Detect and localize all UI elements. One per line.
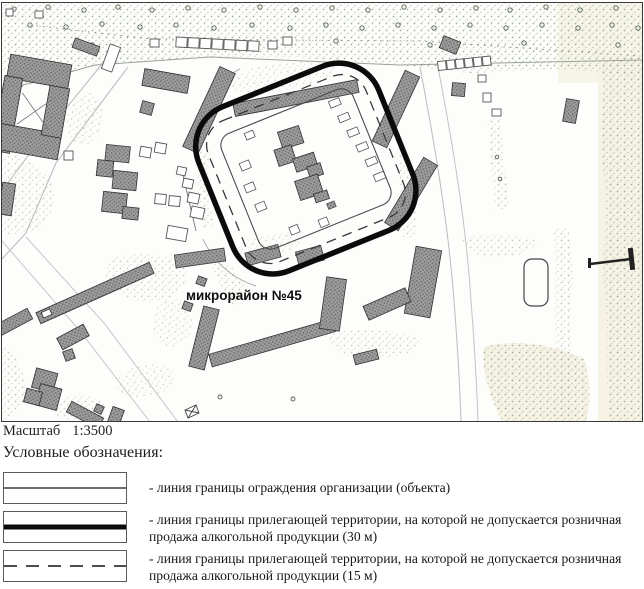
legend-item-text: - линия границы ограждения организации (…: [149, 472, 644, 496]
boundary-15m-swatch: [3, 550, 127, 582]
district-label: микрорайон №45: [186, 288, 302, 303]
fence-line-swatch: [3, 472, 127, 504]
legend-title: Условные обозначения:: [3, 444, 163, 462]
building-courtyard-block: [2, 54, 74, 162]
legend-item-fence: - линия границы ограждения организации (…: [3, 472, 644, 504]
boundary-30m-swatch: [3, 511, 127, 543]
sports-field-outline: [524, 259, 548, 306]
scale-label: Масштаб: [3, 423, 60, 439]
building-stepped-west: [92, 144, 145, 220]
map-canvas: микрорайон №45: [1, 2, 643, 422]
scale-row: Масштаб1:3500: [3, 423, 113, 440]
scale-value: 1:3500: [72, 423, 112, 439]
building-kindergarten: [269, 123, 331, 210]
legend-item-15m: - линия границы прилегающей территории, …: [3, 550, 644, 584]
legend-item-text: - линия границы прилегающей территории, …: [149, 550, 644, 584]
legend-item-text: - линия границы прилегающей территории, …: [149, 511, 644, 545]
ruined-building-symbol: [185, 405, 199, 418]
legend-item-30m: - линия границы прилегающей территории, …: [3, 511, 644, 545]
